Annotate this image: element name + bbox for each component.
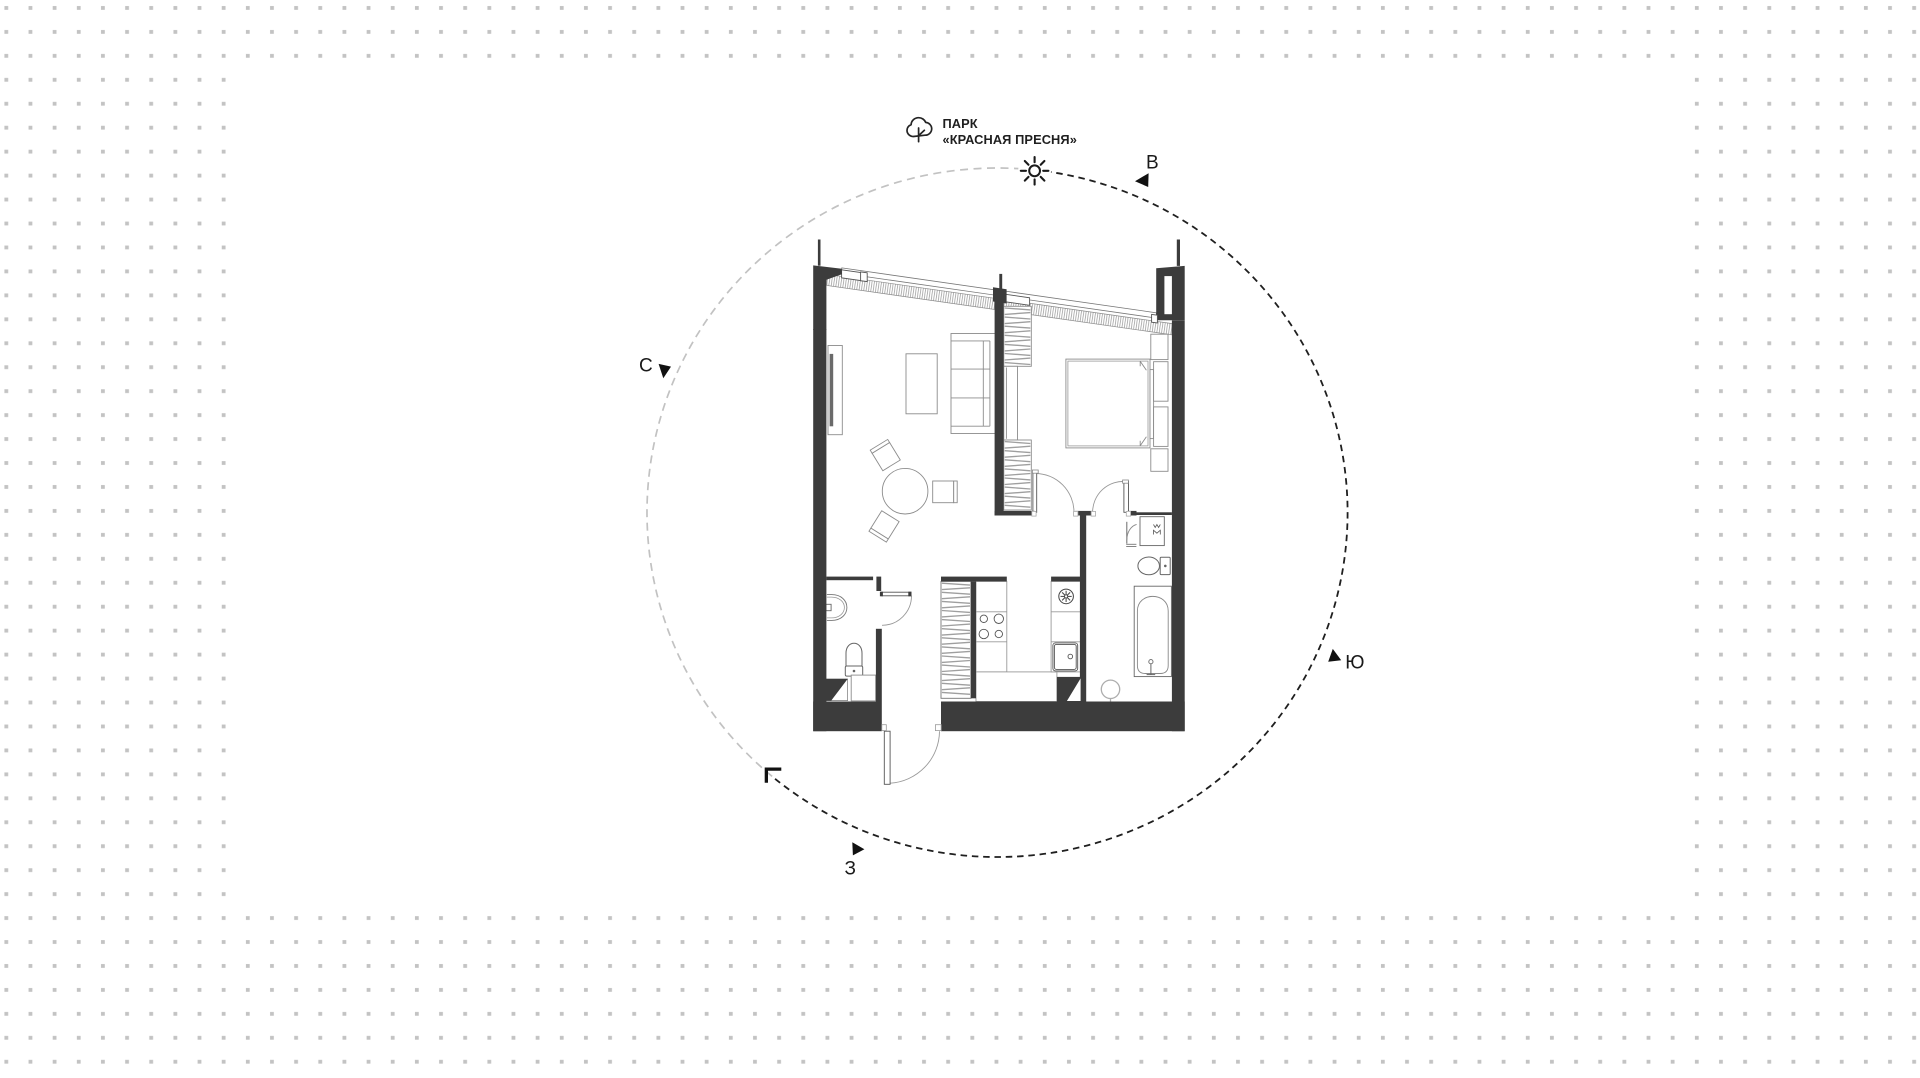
svg-text:С: С bbox=[639, 356, 653, 377]
svg-text:«КРАСНАЯ ПРЕСНЯ»: «КРАСНАЯ ПРЕСНЯ» bbox=[943, 132, 1077, 147]
svg-text:Ю: Ю bbox=[1345, 652, 1364, 673]
svg-text:В: В bbox=[1146, 152, 1159, 173]
svg-text:З: З bbox=[845, 859, 856, 880]
svg-text:ПАРК: ПАРК bbox=[943, 116, 978, 131]
